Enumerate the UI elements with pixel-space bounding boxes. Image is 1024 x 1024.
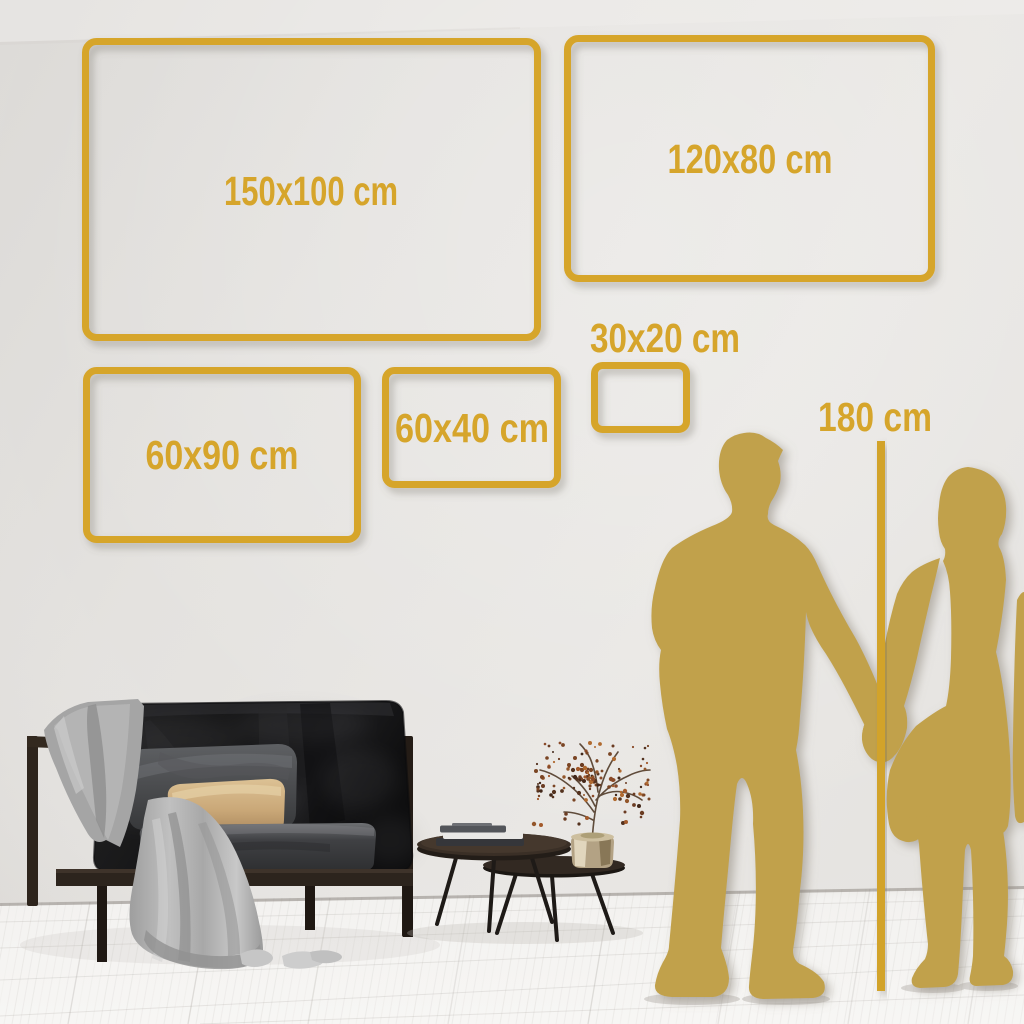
svg-text:60x90 cm: 60x90 cm [146,432,299,478]
svg-text:180 cm: 180 cm [818,394,932,440]
svg-text:60x40 cm: 60x40 cm [395,405,549,451]
svg-text:30x20 cm: 30x20 cm [590,315,740,361]
svg-text:120x80 cm: 120x80 cm [668,136,833,182]
svg-text:150x100 cm: 150x100 cm [224,168,398,214]
